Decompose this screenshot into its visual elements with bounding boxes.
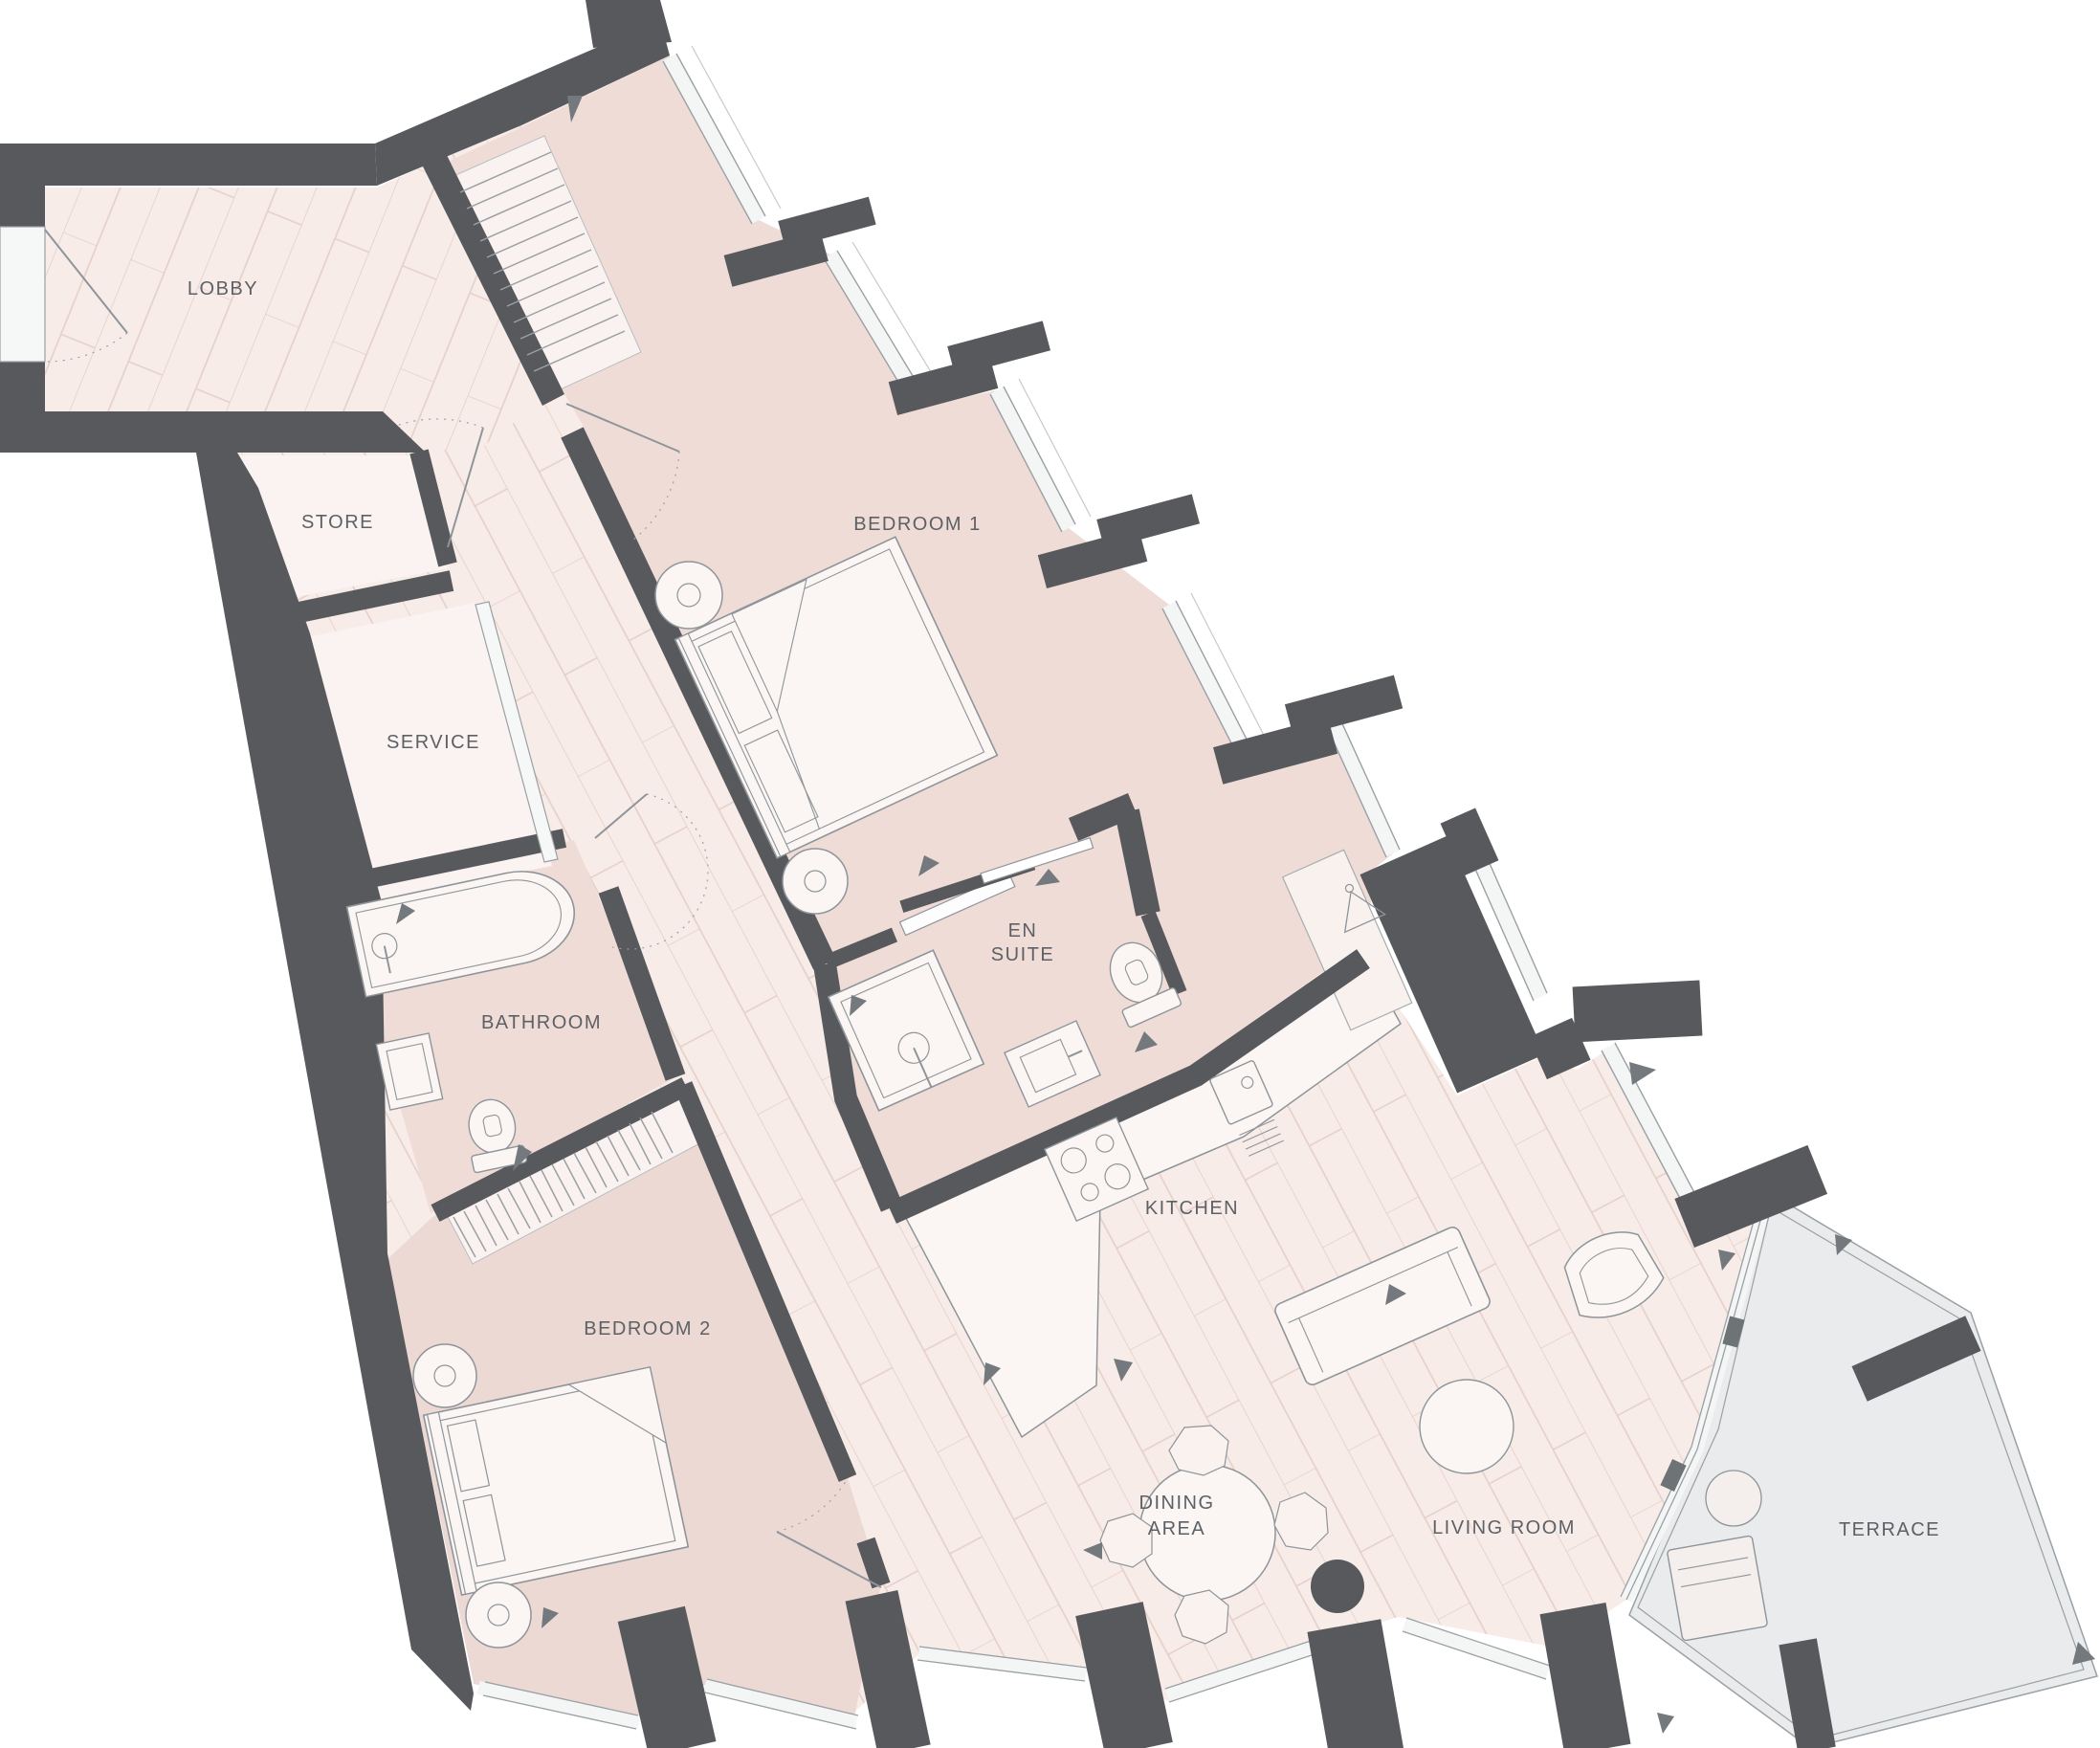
svg-text:KITCHEN: KITCHEN	[1145, 1198, 1239, 1219]
svg-text:BEDROOM 2: BEDROOM 2	[584, 1318, 712, 1339]
svg-text:BEDROOM 1: BEDROOM 1	[853, 514, 982, 535]
svg-text:EN: EN	[1008, 920, 1038, 941]
svg-text:BATHROOM: BATHROOM	[481, 1012, 602, 1033]
svg-text:TERRACE: TERRACE	[1839, 1519, 1940, 1540]
svg-text:SUITE: SUITE	[991, 944, 1054, 965]
svg-text:LIVING ROOM: LIVING ROOM	[1432, 1517, 1576, 1538]
svg-text:SERVICE: SERVICE	[387, 732, 480, 753]
svg-text:STORE: STORE	[301, 512, 374, 533]
svg-text:DINING: DINING	[1139, 1493, 1215, 1514]
svg-text:LOBBY: LOBBY	[188, 278, 258, 299]
svg-text:AREA: AREA	[1148, 1518, 1205, 1539]
